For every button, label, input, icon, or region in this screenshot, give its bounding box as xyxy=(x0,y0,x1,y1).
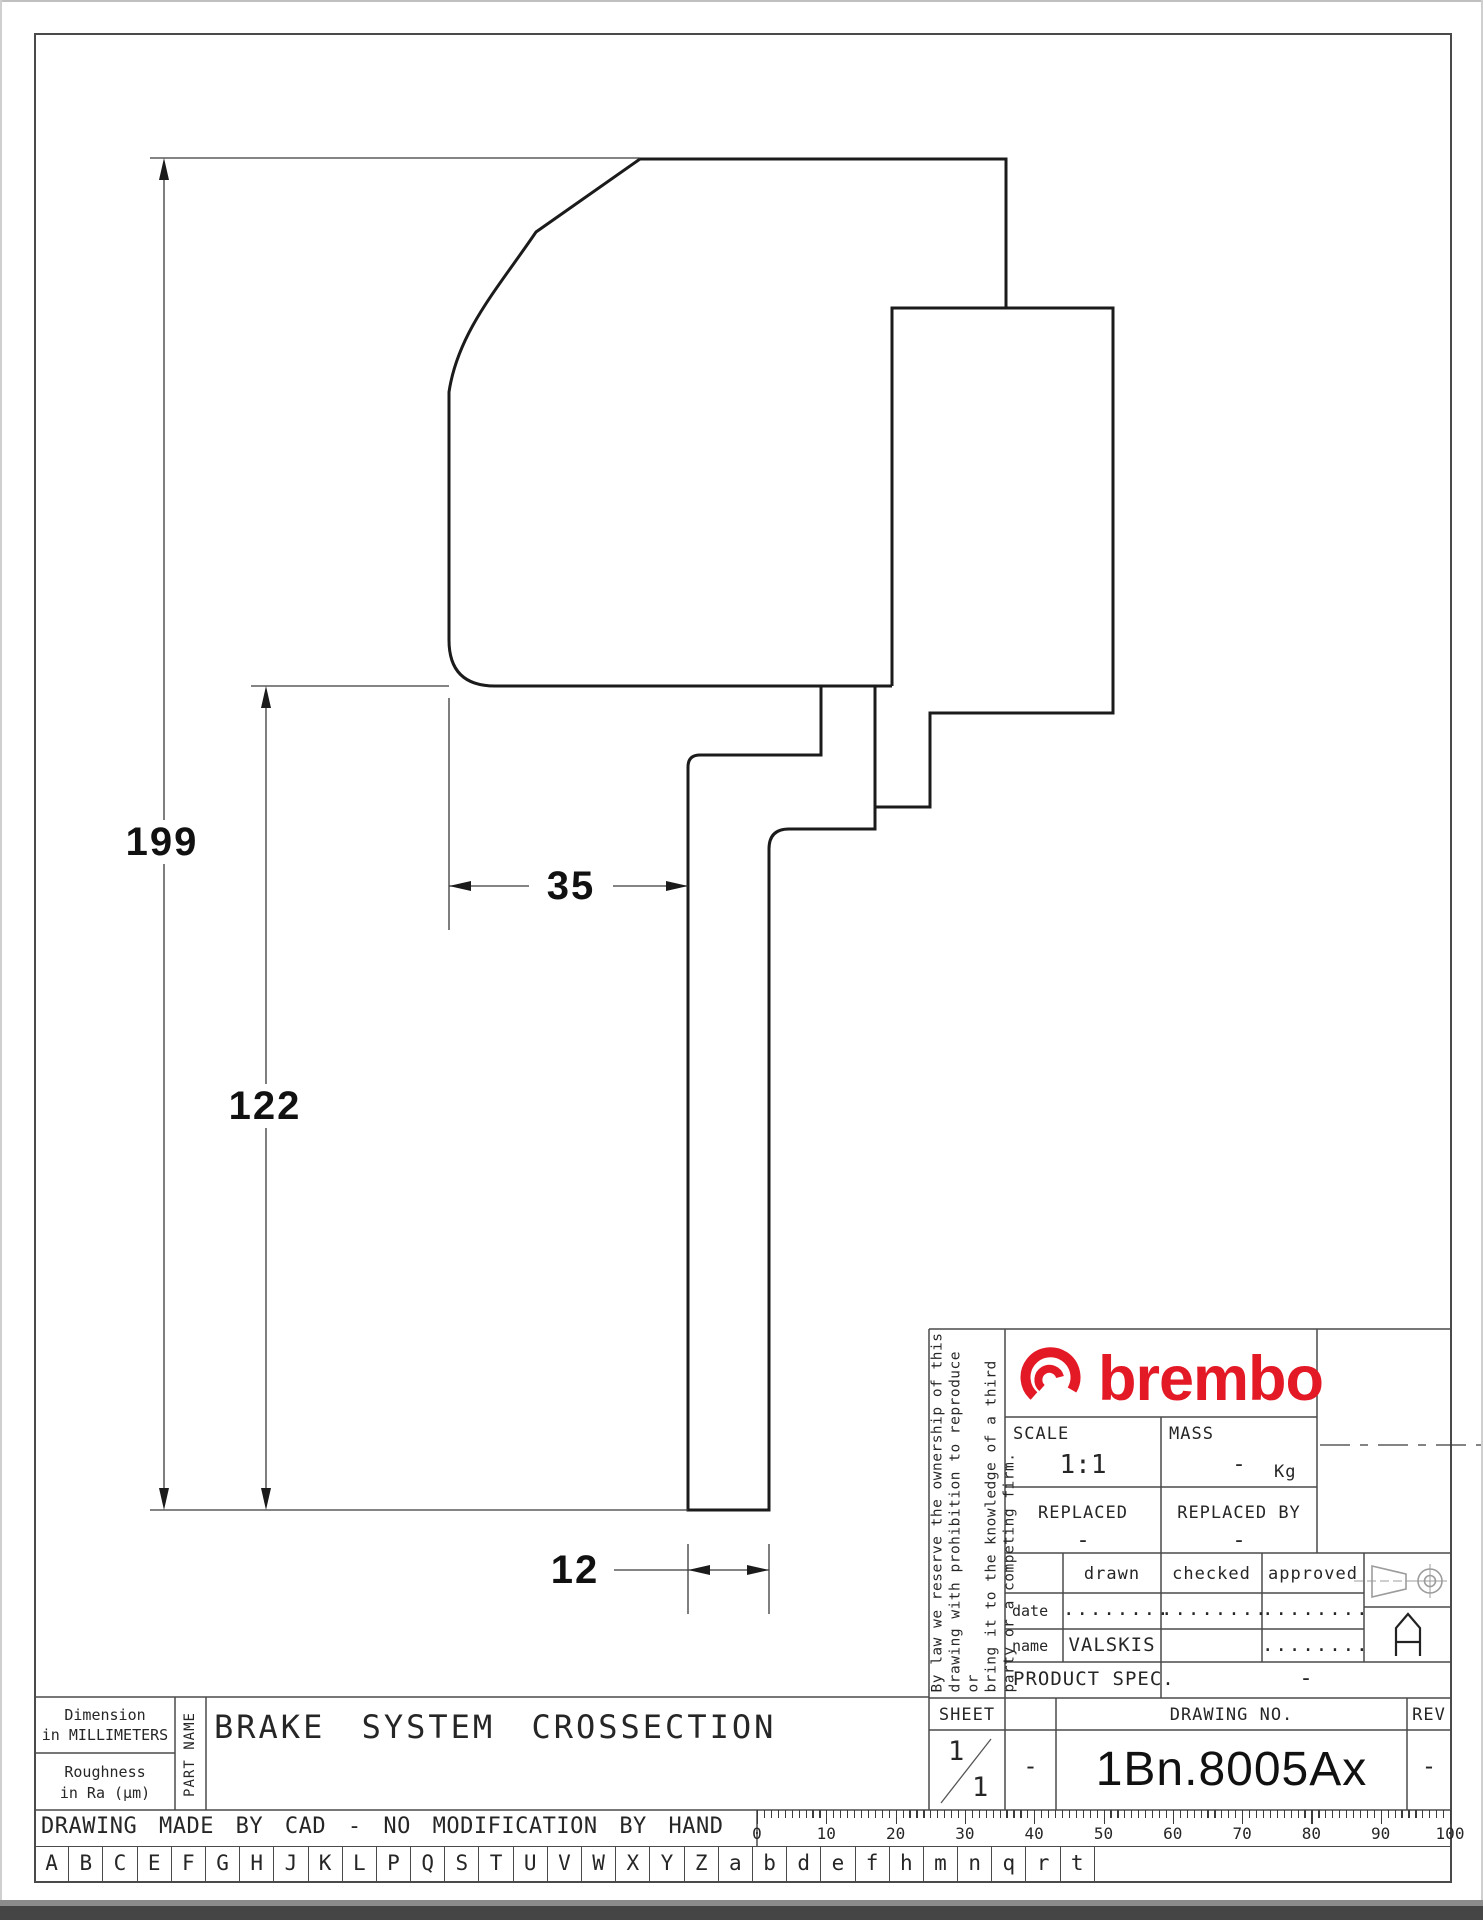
ruler-minor-tick xyxy=(1201,1810,1202,1818)
ruler-major-tick xyxy=(1242,1810,1243,1824)
edge-bottom-dark xyxy=(0,1906,1483,1920)
dimension-note-line2: in MILLIMETERS xyxy=(38,1726,172,1744)
ruler-minor-tick xyxy=(1207,1810,1208,1818)
approved-label: approved xyxy=(1262,1564,1364,1584)
ruler-minor-tick xyxy=(1194,1810,1195,1818)
product-spec-value: - xyxy=(1161,1666,1451,1691)
ruler-major-tick xyxy=(826,1810,827,1824)
brembo-logo-icon xyxy=(1026,1352,1076,1396)
ruler-major-tick xyxy=(896,1810,897,1824)
letter-cell-Z: Z xyxy=(685,1847,719,1881)
letter-cell-W: W xyxy=(582,1847,616,1881)
ruler-minor-tick xyxy=(799,1810,800,1818)
ruler-minor-tick xyxy=(819,1810,820,1818)
ruler-minor-tick xyxy=(903,1810,904,1818)
letters-strip: ABCEFGHJKLPQSTUVWXYZabdefhmnqrt xyxy=(35,1846,1451,1882)
ruler-minor-tick xyxy=(1159,1810,1160,1818)
ruler-minor-tick xyxy=(1408,1810,1409,1818)
ruler-minor-tick xyxy=(1422,1810,1423,1818)
ruler-minor-tick xyxy=(1117,1810,1118,1818)
letter-cell-m: m xyxy=(924,1847,958,1881)
name-label: name xyxy=(1012,1637,1048,1655)
roughness-note-line2: in Ra (µm) xyxy=(40,1784,170,1802)
ruler-minor-tick xyxy=(1346,1810,1347,1818)
ruler-minor-tick xyxy=(833,1810,834,1818)
rev-label: REV xyxy=(1407,1705,1451,1725)
drawing-no-label: DRAWING NO. xyxy=(1056,1705,1407,1725)
ruler-minor-tick xyxy=(1367,1810,1368,1818)
ruler-minor-tick xyxy=(1090,1810,1091,1818)
ruler-minor-tick xyxy=(923,1810,924,1818)
ruler-minor-tick xyxy=(1353,1810,1354,1818)
brand-wordmark: brembo xyxy=(1098,1346,1310,1412)
sheet-dash: - xyxy=(1005,1752,1056,1780)
letter-cell-Y: Y xyxy=(650,1847,684,1881)
letter-cell-V: V xyxy=(548,1847,582,1881)
ruler-minor-tick xyxy=(1332,1810,1333,1818)
ruler-minor-tick xyxy=(1076,1810,1077,1818)
letter-cell-B: B xyxy=(69,1847,103,1881)
ruler-minor-tick xyxy=(986,1810,987,1818)
letter-cell-a: a xyxy=(719,1847,753,1881)
date-drawn: ........ xyxy=(1063,1598,1161,1620)
ruler-minor-tick xyxy=(1152,1810,1153,1818)
legal-text-line-2: drawing with prohibition to reproduce or xyxy=(947,1330,983,1693)
ruler-minor-tick xyxy=(1124,1810,1125,1818)
letter-cell-A: A xyxy=(35,1847,69,1881)
date-approved: ........ xyxy=(1262,1598,1364,1620)
ruler-minor-tick xyxy=(1291,1810,1292,1818)
ruler-minor-tick xyxy=(882,1810,883,1818)
ruler-minor-tick xyxy=(1277,1810,1278,1818)
ruler-major-tick xyxy=(757,1810,758,1824)
ruler-minor-tick xyxy=(958,1810,959,1818)
letter-cell-n: n xyxy=(958,1847,992,1881)
letter-cell-q: q xyxy=(992,1847,1026,1881)
ruler-minor-tick xyxy=(1083,1810,1084,1818)
letter-cell-d: d xyxy=(787,1847,821,1881)
ruler-minor-tick xyxy=(1270,1810,1271,1818)
ruler-minor-tick xyxy=(1325,1810,1326,1818)
ruler-minor-tick xyxy=(1339,1810,1340,1818)
view-label-glyph xyxy=(1396,1614,1420,1656)
ruler-number-60: 60 xyxy=(1151,1824,1195,1843)
ruler-minor-tick xyxy=(1020,1810,1021,1818)
ruler-minor-tick xyxy=(979,1810,980,1818)
ruler-minor-tick xyxy=(792,1810,793,1818)
letter-cell-S: S xyxy=(445,1847,479,1881)
ruler-number-50: 50 xyxy=(1082,1824,1126,1843)
ruler-minor-tick xyxy=(1401,1810,1402,1818)
ruler-minor-tick xyxy=(875,1810,876,1818)
projection-symbol-icon xyxy=(1354,1564,1447,1598)
ruler-minor-tick xyxy=(1006,1810,1007,1818)
part-name: BRAKE SYSTEM CROSSECTION xyxy=(214,1708,776,1746)
ruler-minor-tick xyxy=(1221,1810,1222,1818)
rev-value: - xyxy=(1407,1752,1451,1780)
ruler-minor-tick xyxy=(951,1810,952,1818)
ruler-minor-tick xyxy=(916,1810,917,1818)
ruler-number-30: 30 xyxy=(943,1824,987,1843)
ruler-minor-tick xyxy=(1298,1810,1299,1818)
ruler-minor-tick xyxy=(854,1810,855,1818)
rotor-block xyxy=(875,308,1113,807)
ruler-minor-tick xyxy=(1069,1810,1070,1818)
letter-cell-P: P xyxy=(377,1847,411,1881)
letter-cell-b: b xyxy=(753,1847,787,1881)
letter-cell-empty xyxy=(1095,1847,1451,1881)
letter-cell-E: E xyxy=(138,1847,172,1881)
ruler-minor-tick xyxy=(1027,1810,1028,1818)
letter-cell-J: J xyxy=(274,1847,308,1881)
roughness-note-line1: Roughness xyxy=(40,1763,170,1781)
ruler-minor-tick xyxy=(847,1810,848,1818)
sheet-number: 1 xyxy=(948,1736,964,1767)
ruler-minor-tick xyxy=(840,1810,841,1818)
ruler-minor-tick xyxy=(764,1810,765,1818)
ruler-major-tick xyxy=(1450,1810,1451,1824)
ruler-number-10: 10 xyxy=(804,1824,848,1843)
ruler-number-40: 40 xyxy=(1012,1824,1056,1843)
letter-cell-Q: Q xyxy=(411,1847,445,1881)
ruler-minor-tick xyxy=(771,1810,772,1818)
ruler-minor-tick xyxy=(1013,1810,1014,1818)
letter-cell-t: t xyxy=(1061,1847,1095,1881)
mass-label: MASS xyxy=(1169,1424,1214,1444)
replaced-by-value: - xyxy=(1161,1528,1317,1553)
ruler-minor-tick xyxy=(889,1810,890,1818)
ruler-minor-tick xyxy=(1436,1810,1437,1818)
letter-cell-f: f xyxy=(856,1847,890,1881)
ruler-minor-tick xyxy=(909,1810,910,1818)
edge-top xyxy=(0,0,1483,2)
drawing-number: 1Bn.8005Ax xyxy=(1056,1742,1407,1797)
letter-cell-e: e xyxy=(821,1847,855,1881)
ruler-minor-tick xyxy=(1304,1810,1305,1818)
ruler-minor-tick xyxy=(1214,1810,1215,1818)
letter-cell-h: h xyxy=(890,1847,924,1881)
replaced-value: - xyxy=(1005,1528,1161,1553)
ruler-major-tick xyxy=(1173,1810,1174,1824)
ruler-minor-tick xyxy=(1318,1810,1319,1818)
scale-value: 1:1 xyxy=(1005,1450,1161,1480)
letter-cell-L: L xyxy=(343,1847,377,1881)
part-name-label: PART NAME xyxy=(175,1698,206,1811)
ruler-major-tick xyxy=(1311,1810,1312,1824)
ruler-number-20: 20 xyxy=(874,1824,918,1843)
ruler-minor-tick xyxy=(1374,1810,1375,1818)
legal-text: By law we reserve the ownership of thisd… xyxy=(929,1330,1005,1699)
scale-label: SCALE xyxy=(1013,1424,1069,1444)
ruler-minor-tick xyxy=(1055,1810,1056,1818)
letter-cell-r: r xyxy=(1026,1847,1060,1881)
drawing-sheet: 199 122 35 12 By law we reserve the owne… xyxy=(0,0,1483,1920)
ruler-major-tick xyxy=(1034,1810,1035,1824)
edge-left xyxy=(0,0,2,1920)
ruler-minor-tick xyxy=(972,1810,973,1818)
ruler-minor-tick xyxy=(1166,1810,1167,1818)
ruler-number-100: 100 xyxy=(1428,1824,1472,1843)
mass-unit: Kg xyxy=(1274,1462,1296,1482)
ruler-minor-tick xyxy=(930,1810,931,1818)
ruler-minor-tick xyxy=(806,1810,807,1818)
ruler-minor-tick xyxy=(1041,1810,1042,1818)
ruler-number-80: 80 xyxy=(1289,1824,1333,1843)
letter-cell-K: K xyxy=(309,1847,343,1881)
date-label: date xyxy=(1012,1602,1048,1620)
dimension-value-199: 199 xyxy=(118,820,206,864)
ruler-minor-tick xyxy=(1284,1810,1285,1818)
ruler-minor-tick xyxy=(868,1810,869,1818)
letter-cell-U: U xyxy=(514,1847,548,1881)
ruler-minor-tick xyxy=(1360,1810,1361,1818)
ruler-major-tick xyxy=(1381,1810,1382,1824)
ruler-minor-tick xyxy=(861,1810,862,1818)
ruler-number-0: 0 xyxy=(735,1824,779,1843)
ruler-minor-tick xyxy=(1443,1810,1444,1818)
name-approved: ........ xyxy=(1262,1634,1364,1656)
drawing-canvas xyxy=(0,0,1483,1920)
ruler-minor-tick xyxy=(1180,1810,1181,1818)
ruler-minor-tick xyxy=(1388,1810,1389,1818)
stem-profile xyxy=(688,686,875,1510)
ruler-minor-tick xyxy=(1263,1810,1264,1818)
ruler-minor-tick xyxy=(1131,1810,1132,1818)
letter-cell-F: F xyxy=(172,1847,206,1881)
ruler-minor-tick xyxy=(1097,1810,1098,1818)
letter-cell-T: T xyxy=(479,1847,513,1881)
ruler-minor-tick xyxy=(785,1810,786,1818)
product-spec-label: PRODUCT SPEC. xyxy=(1013,1668,1175,1690)
replaced-by-label: REPLACED BY xyxy=(1161,1503,1317,1523)
ruler-minor-tick xyxy=(1249,1810,1250,1818)
drawn-label: drawn xyxy=(1063,1564,1161,1584)
ruler-minor-tick xyxy=(944,1810,945,1818)
ruler-major-tick xyxy=(965,1810,966,1824)
ruler-minor-tick xyxy=(1415,1810,1416,1818)
ruler-minor-tick xyxy=(1429,1810,1430,1818)
legal-text-line-3: bring it to the knowledge of a third xyxy=(983,1330,1001,1693)
hat-profile xyxy=(449,159,1006,686)
ruler-minor-tick xyxy=(778,1810,779,1818)
name-drawn: VALSKIS xyxy=(1063,1634,1161,1656)
ruler-minor-tick xyxy=(1228,1810,1229,1818)
ruler-number-90: 90 xyxy=(1359,1824,1403,1843)
dimension-value-12: 12 xyxy=(540,1548,610,1592)
ruler-minor-tick xyxy=(1235,1810,1236,1818)
ruler-number-70: 70 xyxy=(1220,1824,1264,1843)
sheet-total: 1 xyxy=(972,1772,988,1803)
letter-cell-G: G xyxy=(206,1847,240,1881)
ruler-minor-tick xyxy=(812,1810,813,1818)
ruler-minor-tick xyxy=(1145,1810,1146,1818)
date-checked: ........ xyxy=(1161,1598,1262,1620)
ruler-minor-tick xyxy=(1395,1810,1396,1818)
ruler-major-tick xyxy=(1104,1810,1105,1824)
ruler-minor-tick xyxy=(1110,1810,1111,1818)
dimension-value-35: 35 xyxy=(529,864,613,908)
ruler-minor-tick xyxy=(1048,1810,1049,1818)
cad-note: DRAWING MADE BY CAD - NO MODIFICATION BY… xyxy=(41,1814,724,1839)
dimension-value-122: 122 xyxy=(221,1084,309,1128)
letter-cell-H: H xyxy=(240,1847,274,1881)
ruler-minor-tick xyxy=(1062,1810,1063,1818)
ruler-minor-tick xyxy=(937,1810,938,1818)
legal-text-line-1: By law we reserve the ownership of this xyxy=(929,1330,947,1693)
dimension-arrows xyxy=(159,158,769,1575)
replaced-label: REPLACED xyxy=(1005,1503,1161,1523)
ruler-minor-tick xyxy=(1256,1810,1257,1818)
letter-cell-X: X xyxy=(616,1847,650,1881)
letter-cell-C: C xyxy=(103,1847,137,1881)
ruler-minor-tick xyxy=(1138,1810,1139,1818)
ruler-minor-tick xyxy=(1187,1810,1188,1818)
sheet-label: SHEET xyxy=(929,1705,1005,1725)
checked-label: checked xyxy=(1161,1564,1262,1584)
dimension-note-line1: Dimension xyxy=(40,1706,170,1724)
ruler-minor-tick xyxy=(1000,1810,1001,1818)
ruler-minor-tick xyxy=(993,1810,994,1818)
part-outline xyxy=(449,159,1113,1510)
